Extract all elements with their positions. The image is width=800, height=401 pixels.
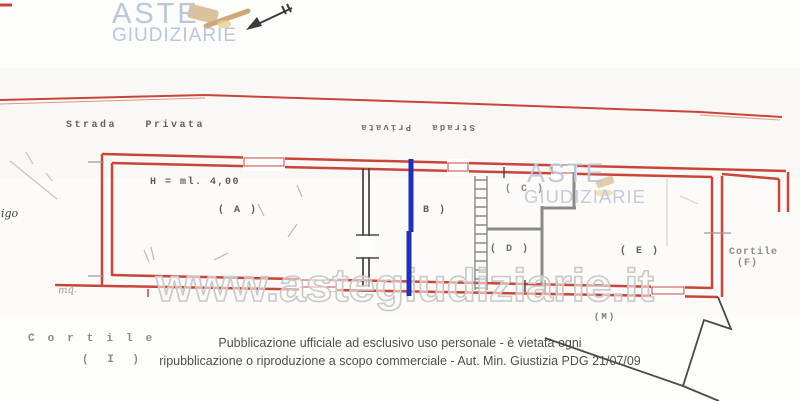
scanned-floorplan-page: Strada Privata Strada Privata H = ml. 4,… [0,0,800,401]
disclaimer-line-2: ripubblicazione o riproduzione a scopo c… [0,352,800,370]
disclaimer-line-1: Pubblicazione ufficiale ad esclusivo uso… [0,334,800,352]
disclaimer-footer: Pubblicazione ufficiale ad esclusivo uso… [0,334,800,370]
blue-marker-line [409,159,411,296]
